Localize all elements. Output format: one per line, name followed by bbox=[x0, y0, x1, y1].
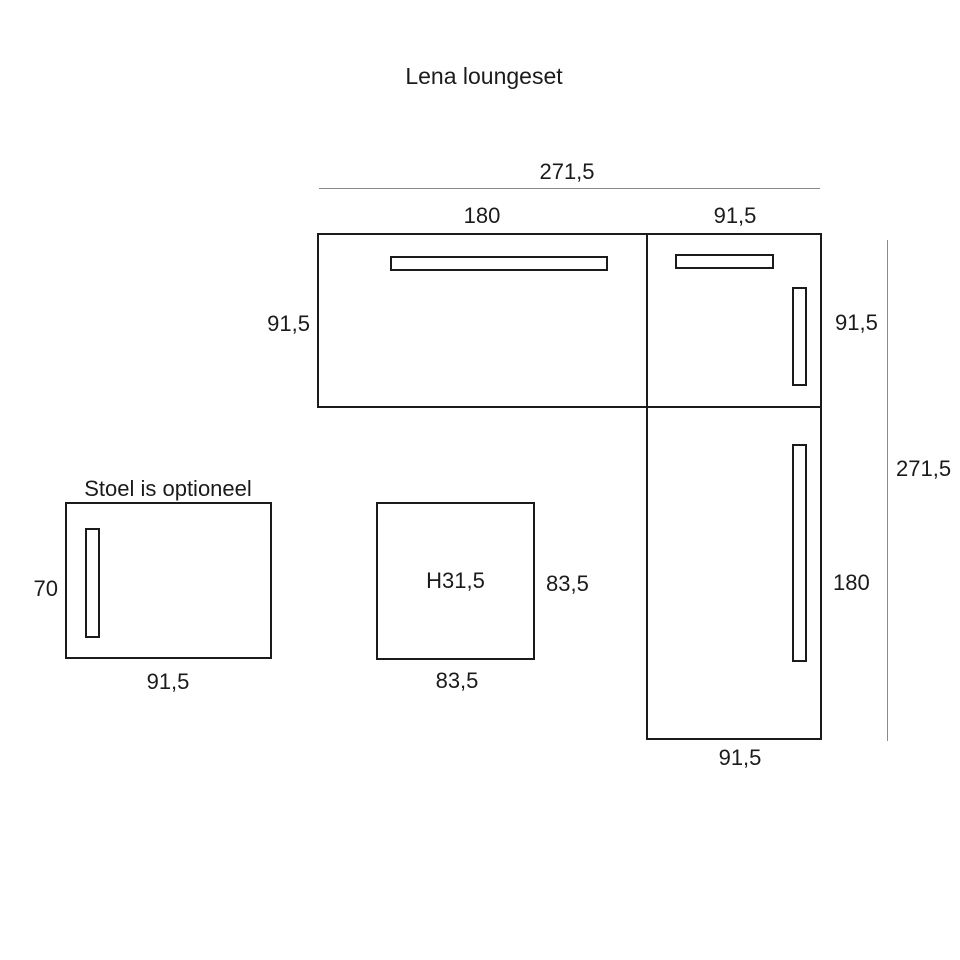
sofa-corner-armrest bbox=[792, 287, 807, 386]
table-outline: H31,5 bbox=[376, 502, 535, 660]
diagram-title: Lena loungeset bbox=[334, 63, 634, 89]
table-height-label: H31,5 bbox=[426, 569, 485, 593]
sofa-short-length-label: 180 bbox=[833, 571, 893, 595]
sofa-corner-width-label: 91,5 bbox=[685, 204, 785, 228]
chair-depth-label: 70 bbox=[10, 577, 58, 601]
dimension-diagram: Lena loungeset 271,5 180 91,5 91,5 91,5 … bbox=[0, 0, 960, 960]
overall-depth-label: 271,5 bbox=[896, 457, 960, 481]
sofa-long-depth-label: 91,5 bbox=[230, 312, 310, 336]
overall-depth-dimension-line bbox=[887, 240, 888, 741]
sofa-long-backrest bbox=[390, 256, 608, 271]
table-depth-label: 83,5 bbox=[546, 572, 616, 596]
sofa-corner-depth-label: 91,5 bbox=[835, 311, 915, 335]
overall-width-dimension-line bbox=[319, 188, 820, 189]
overall-width-label: 271,5 bbox=[417, 160, 717, 184]
sofa-short-armrest bbox=[792, 444, 807, 662]
sofa-long-width-label: 180 bbox=[332, 204, 632, 228]
chair-note-label: Stoel is optioneel bbox=[68, 477, 268, 501]
chair-width-label: 91,5 bbox=[118, 670, 218, 694]
sofa-short-width-label: 91,5 bbox=[690, 746, 790, 770]
chair-armrest bbox=[85, 528, 100, 638]
sofa-corner-backrest bbox=[675, 254, 774, 269]
table-width-label: 83,5 bbox=[407, 669, 507, 693]
